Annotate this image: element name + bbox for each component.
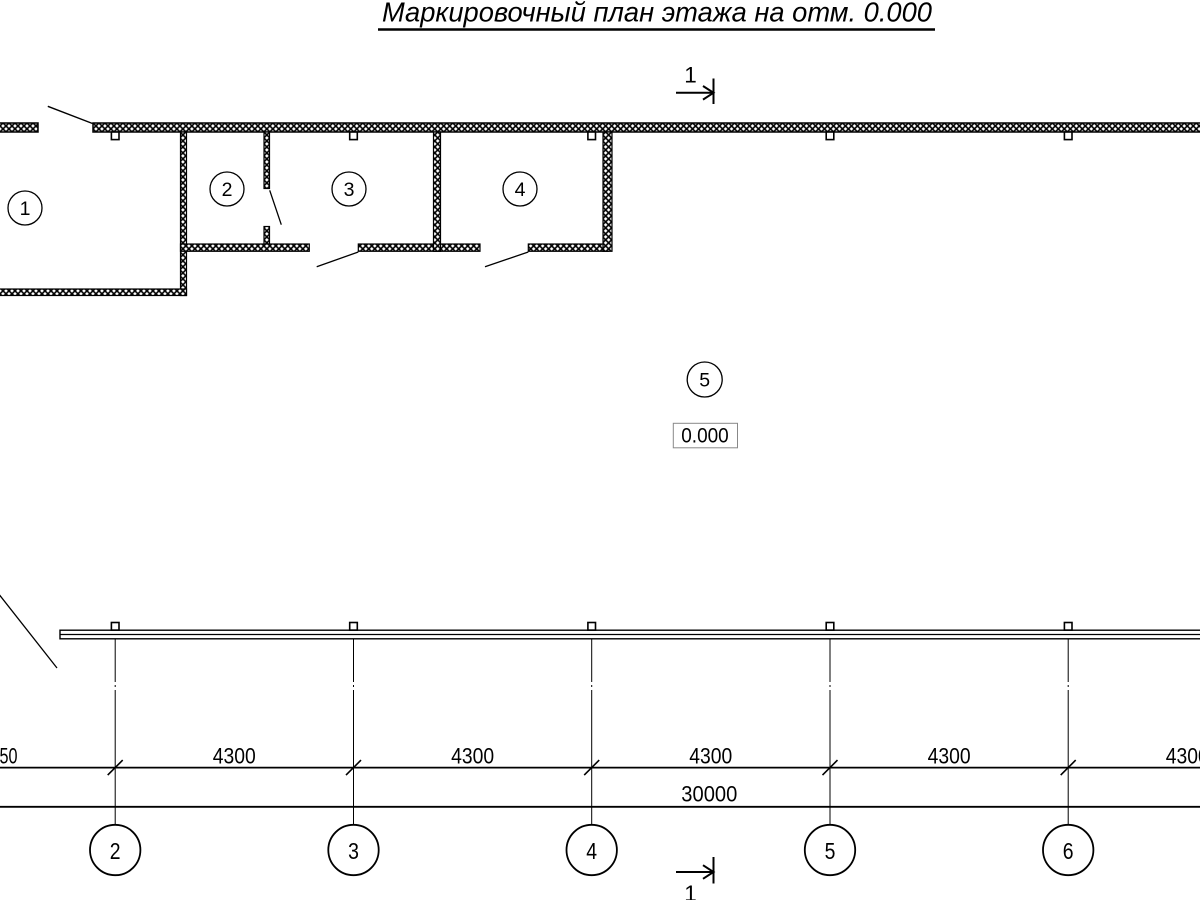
- svg-text:30000: 30000: [681, 782, 737, 807]
- svg-text:4300: 4300: [213, 743, 256, 768]
- svg-text:5: 5: [825, 838, 836, 864]
- svg-text:4300: 4300: [451, 743, 494, 768]
- svg-text:6: 6: [1063, 838, 1074, 864]
- svg-text:0.000: 0.000: [681, 425, 729, 448]
- svg-text:2: 2: [110, 838, 121, 864]
- svg-text:1: 1: [684, 881, 697, 900]
- svg-text:5: 5: [699, 370, 710, 392]
- svg-text:1: 1: [20, 198, 31, 220]
- svg-text:4300: 4300: [928, 743, 971, 768]
- svg-text:Маркировочный план этажа на от: Маркировочный план этажа на отм. 0.000: [382, 0, 933, 28]
- svg-text:1: 1: [684, 63, 697, 88]
- svg-text:3: 3: [348, 838, 359, 864]
- svg-text:50: 50: [0, 743, 18, 768]
- svg-text:4: 4: [586, 838, 597, 864]
- svg-text:3: 3: [344, 179, 355, 201]
- svg-text:4300: 4300: [1166, 743, 1200, 768]
- svg-text:4300: 4300: [689, 743, 732, 768]
- svg-text:2: 2: [222, 179, 233, 201]
- svg-text:4: 4: [515, 179, 526, 201]
